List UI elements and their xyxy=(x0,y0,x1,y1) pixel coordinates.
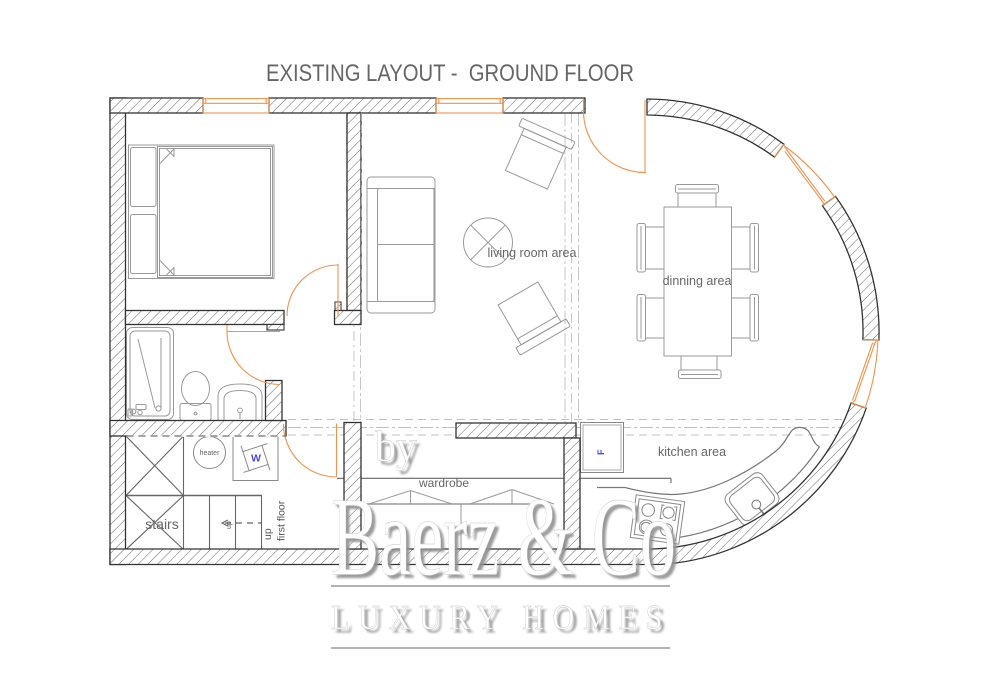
svg-text:Baerz & Co: Baerz & Co xyxy=(331,476,676,600)
svg-text:up: up xyxy=(262,528,274,540)
svg-text:LUXURY HOMES: LUXURY HOMES xyxy=(331,598,671,637)
svg-text:heater: heater xyxy=(200,450,221,457)
svg-text:kitchen area: kitchen area xyxy=(658,445,726,459)
svg-text:by: by xyxy=(375,422,417,471)
svg-text:F: F xyxy=(596,449,606,455)
svg-text:W: W xyxy=(251,453,261,465)
svg-text:stairs: stairs xyxy=(145,516,178,532)
svg-text:EXISTING LAYOUT - GROUND FLOO: EXISTING LAYOUT - GROUND FLOOR xyxy=(266,60,634,87)
svg-text:first floor: first floor xyxy=(276,500,288,541)
svg-text:living room area: living room area xyxy=(488,246,577,260)
svg-text:dinning area: dinning area xyxy=(663,274,732,288)
svg-text:up: up xyxy=(226,521,233,529)
